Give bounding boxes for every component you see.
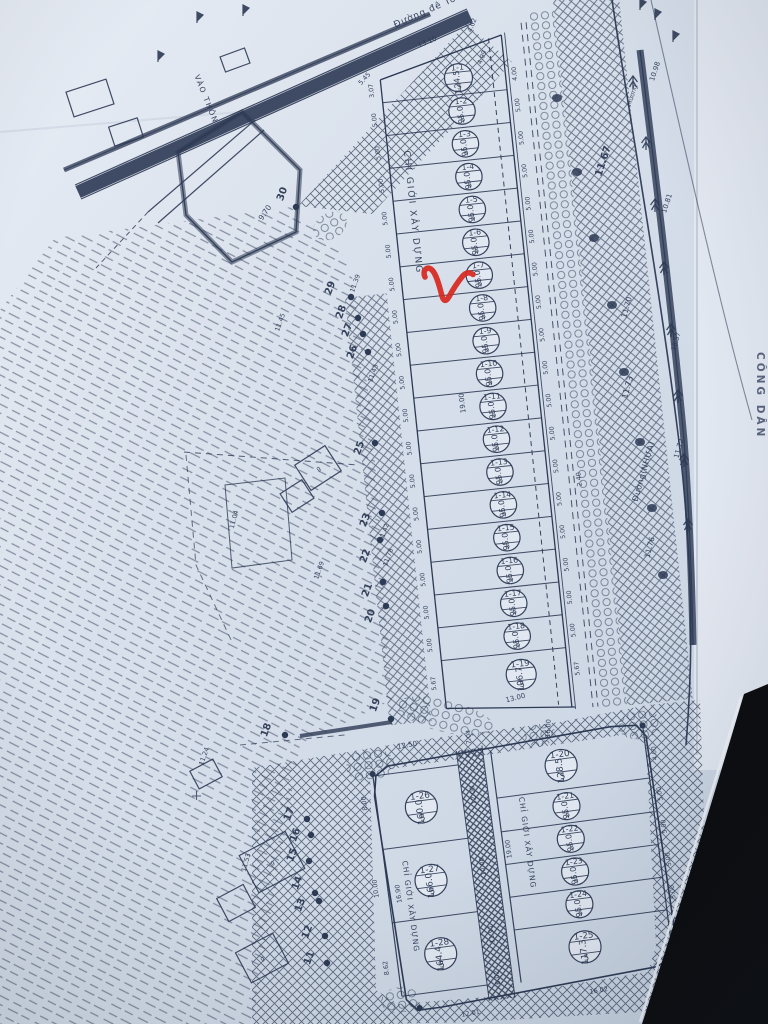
photo-vignette [0,0,768,1024]
plan-canvas: gggĐường đê TôVÀO THÔN1-1124.553.074.001… [0,0,768,1024]
photo-of-land-plot-plan: gggĐường đê TôVÀO THÔN1-1124.553.074.001… [0,0,768,1024]
